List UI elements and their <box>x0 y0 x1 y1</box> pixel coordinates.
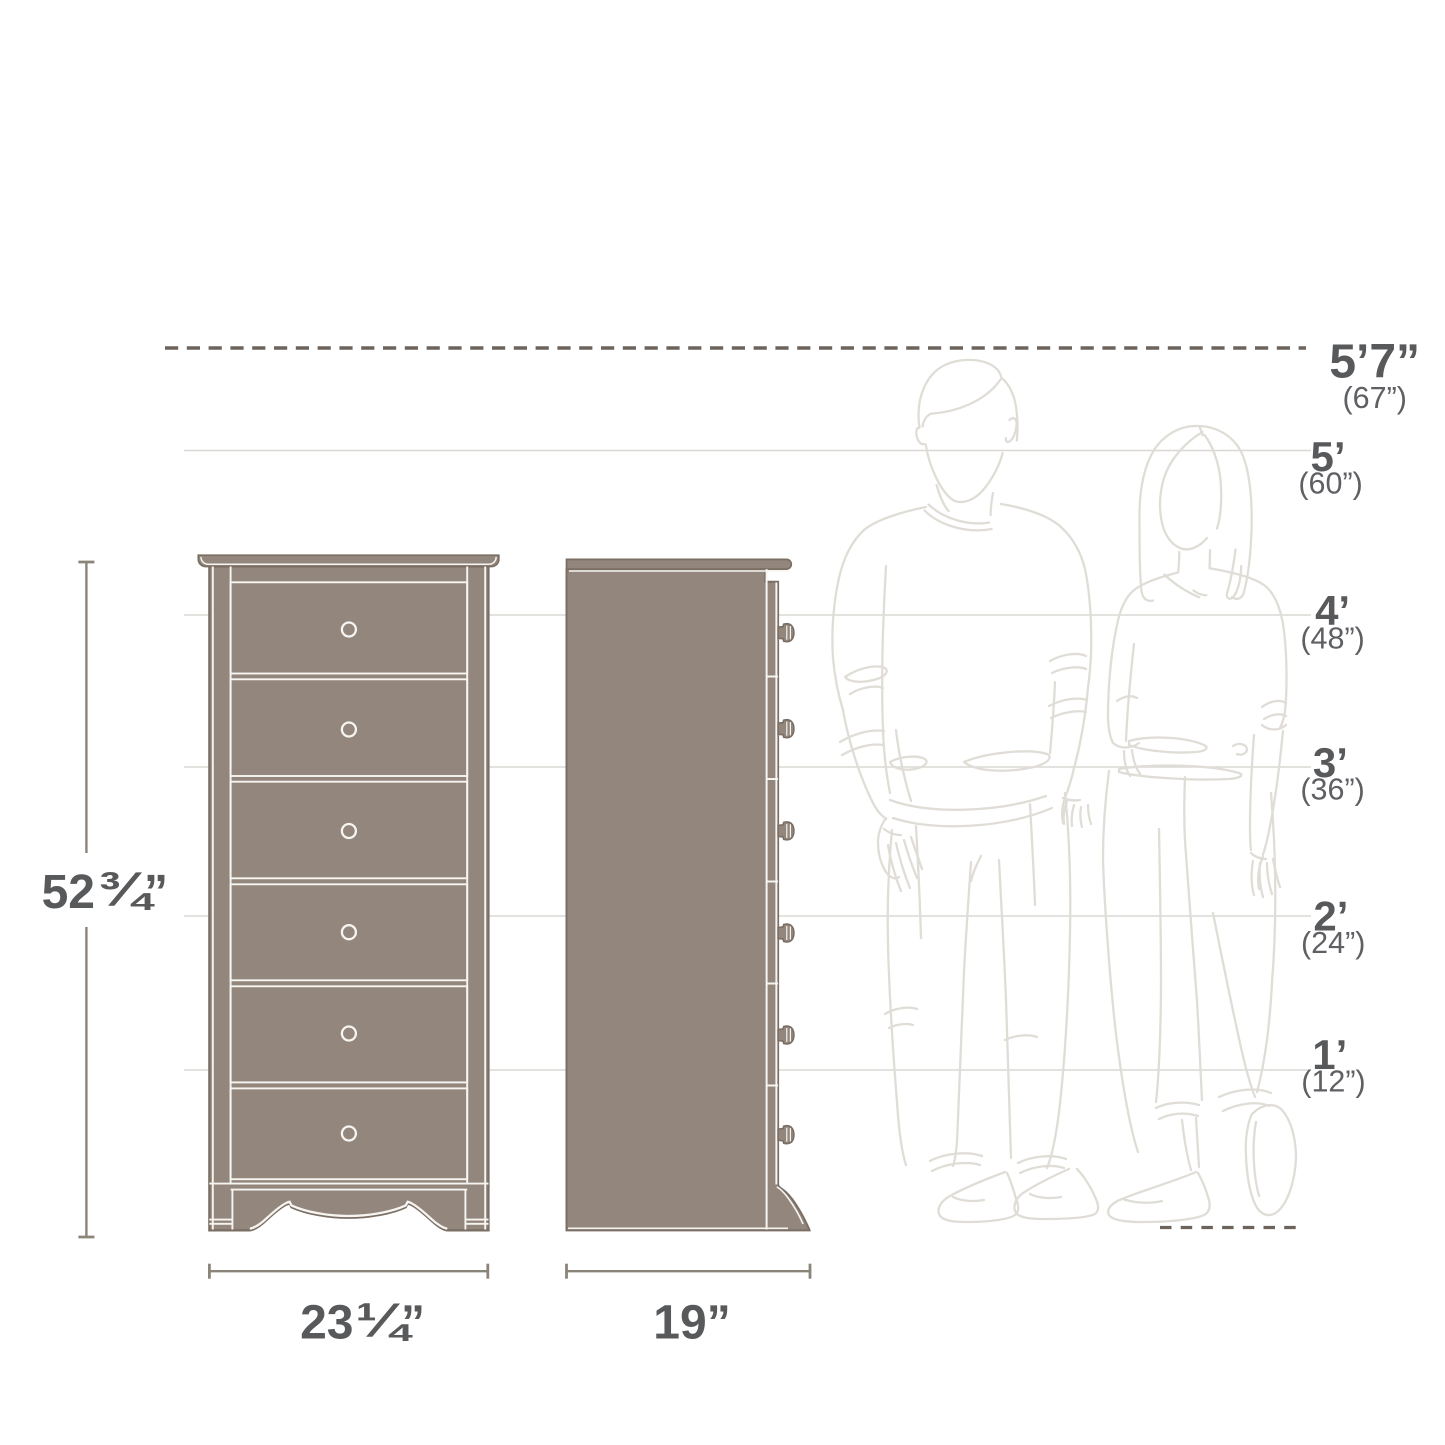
svg-text:(67”): (67”) <box>1342 381 1406 415</box>
svg-text:(24”): (24”) <box>1301 926 1365 960</box>
svg-text:19”: 19” <box>653 1297 730 1350</box>
svg-text:(60”): (60”) <box>1298 467 1362 501</box>
svg-text:(36”): (36”) <box>1300 773 1364 807</box>
svg-text:(48”): (48”) <box>1300 622 1364 656</box>
svg-text:”: ” <box>144 866 168 919</box>
svg-text:23: 23 <box>300 1297 353 1350</box>
svg-text:”: ” <box>401 1297 425 1350</box>
svg-text:(12”): (12”) <box>1301 1065 1365 1099</box>
svg-text:52: 52 <box>42 866 95 919</box>
